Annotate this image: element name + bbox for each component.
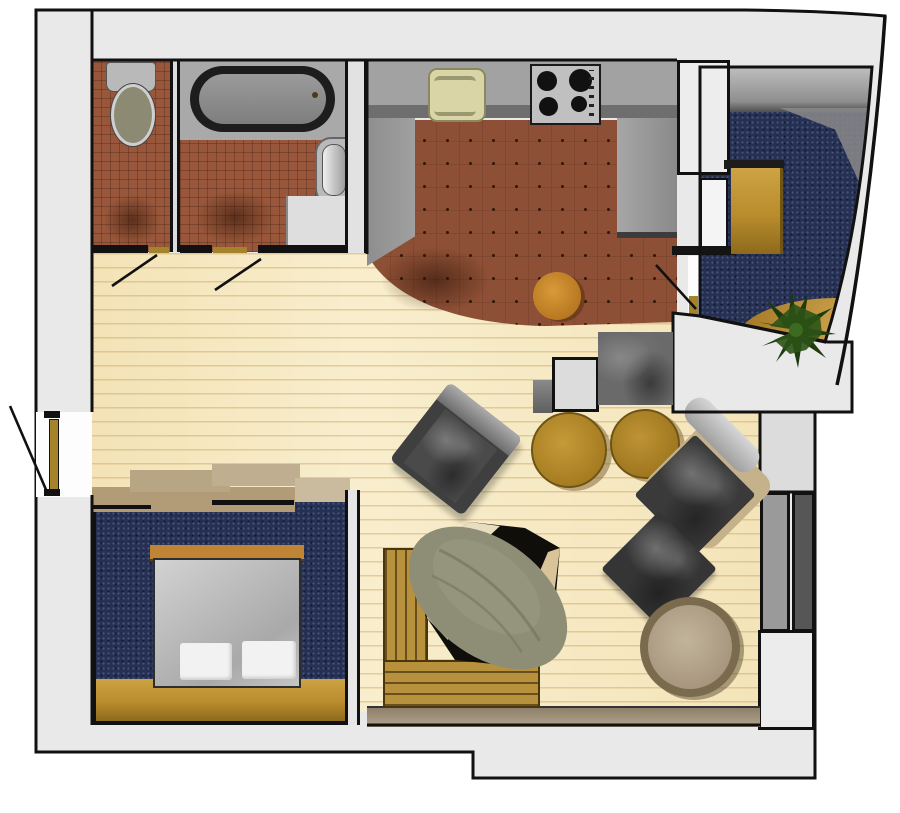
wc-door-swing [112, 255, 157, 286]
curved-outer-wall-line [837, 16, 885, 385]
balcony-door-swing [656, 265, 696, 309]
entry-door-swing [10, 406, 47, 492]
line-overlay [0, 0, 900, 813]
bath-door-swing [215, 259, 261, 290]
floor-plan [0, 0, 900, 813]
door-swings [10, 255, 696, 492]
